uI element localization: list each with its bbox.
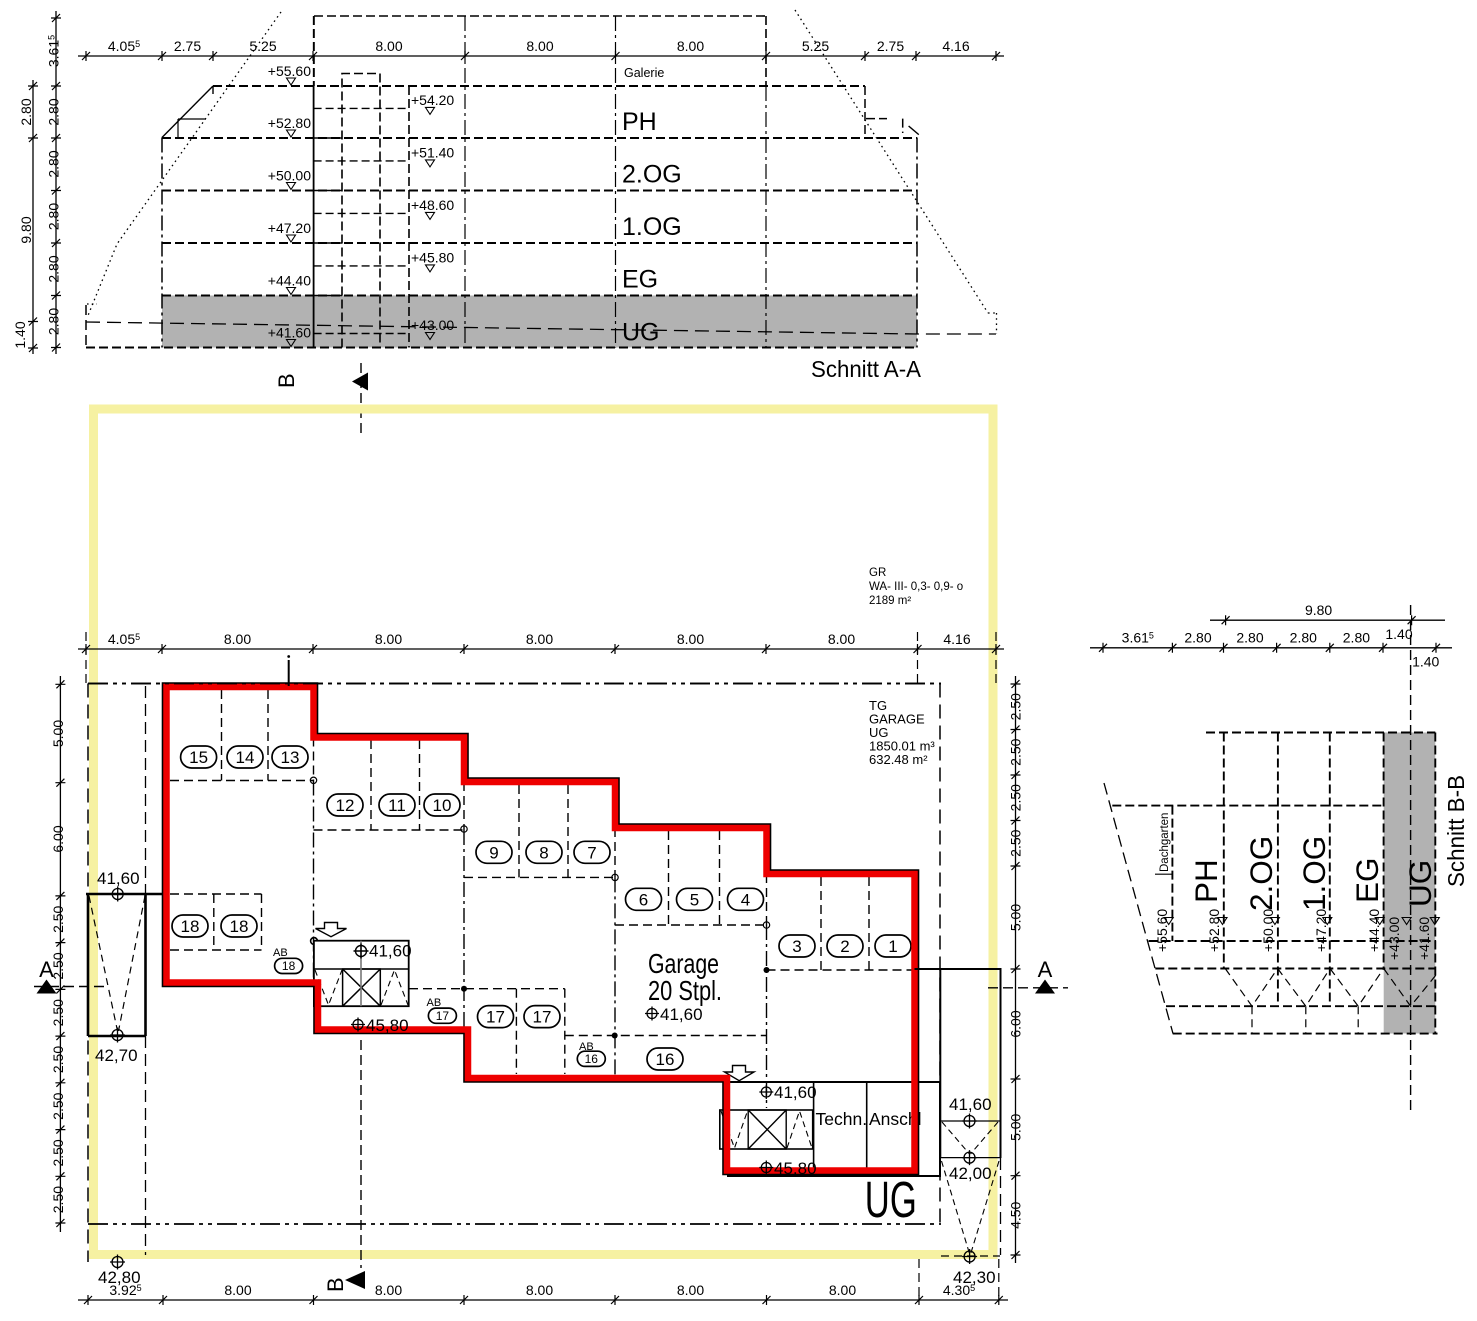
svg-text:12: 12 xyxy=(336,796,355,815)
svg-text:UG: UG xyxy=(622,319,660,347)
svg-text:41,60: 41,60 xyxy=(949,1095,992,1114)
svg-text:8.00: 8.00 xyxy=(829,1282,856,1298)
svg-text:4.50: 4.50 xyxy=(1008,1201,1024,1228)
svg-text:9.80: 9.80 xyxy=(18,216,34,243)
svg-text:2.50: 2.50 xyxy=(50,1046,66,1073)
svg-text:4.055: 4.055 xyxy=(108,631,140,647)
svg-text:8.00: 8.00 xyxy=(375,1282,402,1298)
svg-text:8.00: 8.00 xyxy=(677,1282,704,1298)
svg-text:8.00: 8.00 xyxy=(526,38,553,54)
svg-text:2.75: 2.75 xyxy=(877,38,904,54)
svg-text:42,00: 42,00 xyxy=(949,1164,992,1183)
svg-text:42,30: 42,30 xyxy=(953,1268,996,1287)
svg-text:+44.40: +44.40 xyxy=(1366,909,1382,952)
svg-text:1.40: 1.40 xyxy=(1412,654,1439,670)
svg-text:2.75: 2.75 xyxy=(174,38,201,54)
svg-text:2.50: 2.50 xyxy=(1008,693,1024,720)
svg-text:2.80: 2.80 xyxy=(18,98,34,125)
svg-text:Techn.: Techn. xyxy=(816,1109,868,1129)
svg-text:Schnitt A-A: Schnitt A-A xyxy=(811,356,922,382)
svg-text:2.OG: 2.OG xyxy=(622,161,682,189)
svg-text:+48.60: +48.60 xyxy=(411,197,454,213)
svg-text:2.80: 2.80 xyxy=(1236,630,1263,646)
svg-text:PH: PH xyxy=(622,108,657,136)
svg-text:2.50: 2.50 xyxy=(50,1092,66,1119)
svg-text:B: B xyxy=(274,373,299,388)
svg-text:2.50: 2.50 xyxy=(50,905,66,932)
svg-text:17: 17 xyxy=(533,1008,552,1027)
svg-text:3.615: 3.615 xyxy=(46,35,62,67)
svg-text:7: 7 xyxy=(587,843,596,862)
svg-text:8.00: 8.00 xyxy=(375,631,402,647)
svg-text:AB: AB xyxy=(273,947,288,959)
svg-text:PH: PH xyxy=(1188,859,1224,903)
svg-text:+50.00: +50.00 xyxy=(268,168,311,184)
svg-text:8.00: 8.00 xyxy=(526,1282,553,1298)
svg-text:2.80: 2.80 xyxy=(46,203,62,230)
svg-text:18: 18 xyxy=(181,917,200,936)
svg-text:2.50: 2.50 xyxy=(1008,784,1024,811)
svg-text:+55.60: +55.60 xyxy=(1154,909,1170,952)
svg-text:8.00: 8.00 xyxy=(224,631,251,647)
svg-text:1.40: 1.40 xyxy=(1385,626,1412,642)
svg-text:11: 11 xyxy=(388,796,406,815)
svg-text:6.00: 6.00 xyxy=(50,825,66,852)
svg-text:2.80: 2.80 xyxy=(46,255,62,282)
svg-text:WA- III- 0,3- 0,9- o: WA- III- 0,3- 0,9- o xyxy=(869,581,963,593)
svg-text:2.50: 2.50 xyxy=(50,1186,66,1213)
svg-text:8.00: 8.00 xyxy=(526,631,553,647)
svg-text:41,60: 41,60 xyxy=(97,869,140,888)
svg-text:+45.80: +45.80 xyxy=(411,249,454,265)
svg-text:2.50: 2.50 xyxy=(1008,829,1024,856)
svg-text:B: B xyxy=(323,1277,348,1292)
svg-text:6: 6 xyxy=(639,890,648,909)
svg-text:15: 15 xyxy=(189,748,208,767)
svg-text:1.OG: 1.OG xyxy=(622,213,682,241)
svg-text:GR: GR xyxy=(869,567,886,579)
svg-text:14: 14 xyxy=(236,748,255,767)
svg-text:5.00: 5.00 xyxy=(50,720,66,747)
svg-text:+43.00: +43.00 xyxy=(411,317,454,333)
svg-text:16: 16 xyxy=(656,1050,675,1069)
svg-text:2.50: 2.50 xyxy=(50,999,66,1026)
svg-text:4.16: 4.16 xyxy=(942,38,969,54)
svg-text:16: 16 xyxy=(585,1052,599,1066)
svg-text:17: 17 xyxy=(436,1009,450,1023)
svg-text:10: 10 xyxy=(433,796,452,815)
svg-text:5.00: 5.00 xyxy=(1008,1113,1024,1140)
svg-text:45,80: 45,80 xyxy=(774,1159,817,1178)
svg-text:8.00: 8.00 xyxy=(677,38,704,54)
svg-text:9.80: 9.80 xyxy=(1305,602,1332,618)
svg-text:+52.80: +52.80 xyxy=(268,115,311,131)
svg-text:18: 18 xyxy=(230,917,249,936)
svg-text:8.00: 8.00 xyxy=(828,631,855,647)
svg-text:18: 18 xyxy=(282,959,296,973)
svg-text:8.00: 8.00 xyxy=(375,38,402,54)
svg-text:1.OG: 1.OG xyxy=(1296,836,1332,911)
svg-text:2.OG: 2.OG xyxy=(1243,836,1279,911)
svg-text:2.80: 2.80 xyxy=(1343,630,1370,646)
svg-text:Schnitt B-B: Schnitt B-B xyxy=(1443,775,1469,887)
svg-text:Dachgarten: Dachgarten xyxy=(1159,813,1171,872)
svg-text:2.80: 2.80 xyxy=(46,308,62,335)
svg-text:2.50: 2.50 xyxy=(1008,738,1024,765)
svg-text:Galerie: Galerie xyxy=(624,66,664,80)
svg-text:+44.40: +44.40 xyxy=(268,273,311,289)
svg-text:+50.00: +50.00 xyxy=(1260,909,1276,952)
svg-text:+41.60: +41.60 xyxy=(1416,917,1432,960)
svg-text:42,70: 42,70 xyxy=(95,1046,138,1065)
svg-text:EG: EG xyxy=(1349,857,1385,903)
svg-text:9: 9 xyxy=(489,843,498,862)
svg-text:2189 m²: 2189 m² xyxy=(869,595,911,607)
svg-text:20 Stpl.: 20 Stpl. xyxy=(648,975,722,1006)
svg-text:13: 13 xyxy=(281,748,300,767)
svg-text:UG: UG xyxy=(1402,860,1438,907)
svg-text:17: 17 xyxy=(486,1008,505,1027)
svg-text:42,80: 42,80 xyxy=(98,1268,141,1287)
svg-text:+55.60: +55.60 xyxy=(268,63,311,79)
svg-text:4.055: 4.055 xyxy=(108,38,140,54)
svg-text:1: 1 xyxy=(888,937,897,956)
svg-text:8: 8 xyxy=(539,843,548,862)
svg-text:EG: EG xyxy=(622,266,658,294)
svg-text:+54.20: +54.20 xyxy=(411,92,454,108)
svg-text:+47.20: +47.20 xyxy=(268,220,311,236)
svg-text:41,60: 41,60 xyxy=(774,1083,817,1102)
svg-text:2.50: 2.50 xyxy=(50,1139,66,1166)
svg-text:5.00: 5.00 xyxy=(1008,904,1024,931)
svg-text:45,80: 45,80 xyxy=(366,1016,409,1035)
svg-text:6.00: 6.00 xyxy=(1008,1010,1024,1037)
svg-text:41,60: 41,60 xyxy=(660,1005,703,1024)
svg-text:+47.20: +47.20 xyxy=(1313,909,1329,952)
svg-text:UG: UG xyxy=(865,1171,917,1228)
svg-text:1.40: 1.40 xyxy=(12,321,28,348)
svg-text:41,60: 41,60 xyxy=(369,942,412,961)
svg-text:2.80: 2.80 xyxy=(46,98,62,125)
svg-text:632.48 m²: 632.48 m² xyxy=(869,752,928,767)
svg-text:3.615: 3.615 xyxy=(1122,630,1154,646)
svg-text:+51.40: +51.40 xyxy=(411,144,454,160)
svg-text:2: 2 xyxy=(840,937,849,956)
svg-text:+41.60: +41.60 xyxy=(268,325,311,341)
svg-text:+52.80: +52.80 xyxy=(1206,909,1222,952)
svg-text:AB: AB xyxy=(427,997,442,1009)
svg-text:2.80: 2.80 xyxy=(46,150,62,177)
svg-text:2.80: 2.80 xyxy=(1290,630,1317,646)
svg-text:8.00: 8.00 xyxy=(677,631,704,647)
svg-text:5.25: 5.25 xyxy=(802,38,829,54)
svg-text:+43.00: +43.00 xyxy=(1386,917,1402,960)
svg-text:4.16: 4.16 xyxy=(943,631,970,647)
svg-text:5: 5 xyxy=(690,890,699,909)
svg-text:4: 4 xyxy=(741,890,750,909)
svg-text:A: A xyxy=(39,957,54,982)
svg-text:3: 3 xyxy=(792,937,801,956)
svg-text:8.00: 8.00 xyxy=(224,1282,251,1298)
svg-text:2.80: 2.80 xyxy=(1184,630,1211,646)
svg-text:A: A xyxy=(1038,957,1053,982)
